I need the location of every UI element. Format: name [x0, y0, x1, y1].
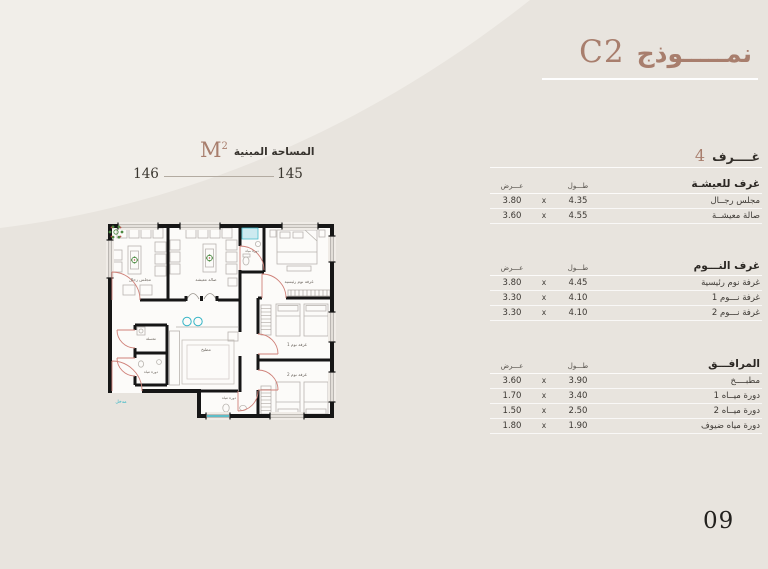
- rooms-count: 4 غــــرف: [490, 146, 762, 168]
- table-row: 3.60 x 4.55 صالة معيشــة: [490, 209, 762, 224]
- rooms-count-number: 4: [695, 146, 705, 165]
- col-header-length: طـــول: [556, 362, 600, 370]
- square-meter-unit: M2: [200, 140, 228, 161]
- room-name: صالة معيشــة: [712, 211, 760, 221]
- rooms-count-label: غــــرف: [712, 149, 760, 164]
- col-header-width: عـــرض: [492, 362, 532, 370]
- length-value: 3.90: [556, 376, 600, 386]
- model-code: C2: [579, 34, 624, 70]
- section-bedrooms: عـــرض طـــول غرف النـــوم 3.80 x 4.45 غ…: [490, 258, 762, 321]
- width-value: 1.70: [492, 391, 532, 401]
- page-title: C2 نمـــــوذج: [579, 34, 752, 70]
- width-value: 3.80: [492, 278, 532, 288]
- length-value: 1.90: [556, 421, 600, 431]
- section-header: عـــرض طـــول المرافـــق: [490, 356, 762, 374]
- section-header: عـــرض طـــول غرف النـــوم: [490, 258, 762, 276]
- col-header-length: طـــول: [556, 264, 600, 272]
- page-number: 09: [703, 508, 734, 534]
- shower-tray: [242, 228, 258, 239]
- length-value: 4.35: [556, 196, 600, 206]
- room-label-kitchen: مطبخ: [201, 347, 211, 352]
- multiply-sign: x: [532, 278, 556, 287]
- title-underline: [542, 78, 758, 80]
- section-utilities: عـــرض طـــول المرافـــق 3.60 x 3.90 مطب…: [490, 356, 762, 434]
- table-row: 3.30 x 4.10 غرفة نـــوم 2: [490, 306, 762, 321]
- room-name: مجلس رجــال: [711, 196, 761, 206]
- length-value: 2.50: [556, 406, 600, 416]
- col-header-length: طـــول: [556, 182, 600, 190]
- width-value: 3.30: [492, 308, 532, 318]
- room-name: غرفة نوم رئيسية: [701, 278, 760, 288]
- area-value-right: 145: [276, 166, 304, 182]
- length-value: 4.45: [556, 278, 600, 288]
- multiply-sign: x: [532, 293, 556, 302]
- table-row: 3.60 x 3.90 مطبــــخ: [490, 374, 762, 389]
- width-value: 1.50: [492, 406, 532, 416]
- room-label-bath-top: دورة مياه: [245, 249, 259, 253]
- table-row: 3.30 x 4.10 غرفة نـــوم 1: [490, 291, 762, 306]
- room-label-bath-left: دورة مياه: [144, 370, 158, 374]
- room-name: دورة ميــاه 1: [714, 391, 760, 401]
- multiply-sign: x: [532, 421, 556, 430]
- floor-plan: مجلس رجال صالة معيشة غرفة نوم رئيسية غرف…: [93, 203, 345, 429]
- length-value: 4.55: [556, 211, 600, 221]
- room-name: مطبــــخ: [730, 376, 760, 386]
- section-title: غرف للعيشـة: [691, 178, 760, 190]
- area-divider-line: [164, 176, 274, 177]
- multiply-sign: x: [532, 196, 556, 205]
- width-value: 3.80: [492, 196, 532, 206]
- width-value: 3.30: [492, 293, 532, 303]
- multiply-sign: x: [532, 406, 556, 415]
- room-label-master: غرفة نوم رئيسية: [284, 279, 314, 284]
- room-name: دورة مياه ضيوف: [701, 421, 760, 431]
- room-label-bedroom2: غرفة نوم 2: [287, 372, 308, 377]
- multiply-sign: x: [532, 376, 556, 385]
- width-value: 1.80: [492, 421, 532, 431]
- room-label-bath-bottom: دورة مياه: [222, 396, 236, 400]
- entrance-label: مدخل: [115, 400, 127, 405]
- length-value: 4.10: [556, 293, 600, 303]
- table-row: 3.80 x 4.35 مجلس رجــال: [490, 194, 762, 209]
- page-title-arabic: نمـــــوذج: [637, 39, 752, 68]
- built-area-label: M2 المساحة المبنية: [200, 140, 315, 161]
- multiply-sign: x: [532, 308, 556, 317]
- col-header-width: عـــرض: [492, 264, 532, 272]
- room-label-bedroom1: غرفة نوم 1: [287, 342, 308, 347]
- room-label-living: صالة معيشة: [195, 277, 217, 282]
- section-title: غرف النـــوم: [694, 260, 760, 272]
- room-label-laundry: مغسلة: [146, 337, 156, 341]
- table-row: 1.70 x 3.40 دورة ميــاه 1: [490, 389, 762, 404]
- multiply-sign: x: [532, 211, 556, 220]
- table-row: 3.80 x 4.45 غرفة نوم رئيسية: [490, 276, 762, 291]
- length-value: 4.10: [556, 308, 600, 318]
- col-header-width: عـــرض: [492, 182, 532, 190]
- width-value: 3.60: [492, 376, 532, 386]
- section-living-rooms: عـــرض طـــول غرف للعيشـة 3.80 x 4.35 مج…: [490, 176, 762, 224]
- table-row: 1.80 x 1.90 دورة مياه ضيوف: [490, 419, 762, 434]
- room-label-majlis: مجلس رجال: [129, 277, 151, 282]
- section-title: المرافـــق: [708, 358, 760, 370]
- width-value: 3.60: [492, 211, 532, 221]
- area-value-left: 146: [132, 166, 160, 182]
- multiply-sign: x: [532, 391, 556, 400]
- room-name: غرفة نـــوم 1: [712, 293, 760, 303]
- room-name: غرفة نـــوم 2: [712, 308, 760, 318]
- length-value: 3.40: [556, 391, 600, 401]
- built-area-text: المساحة المبنية: [234, 140, 315, 158]
- table-row: 1.50 x 2.50 دورة ميــاه 2: [490, 404, 762, 419]
- room-name: دورة ميــاه 2: [714, 406, 760, 416]
- section-header: عـــرض طـــول غرف للعيشـة: [490, 176, 762, 194]
